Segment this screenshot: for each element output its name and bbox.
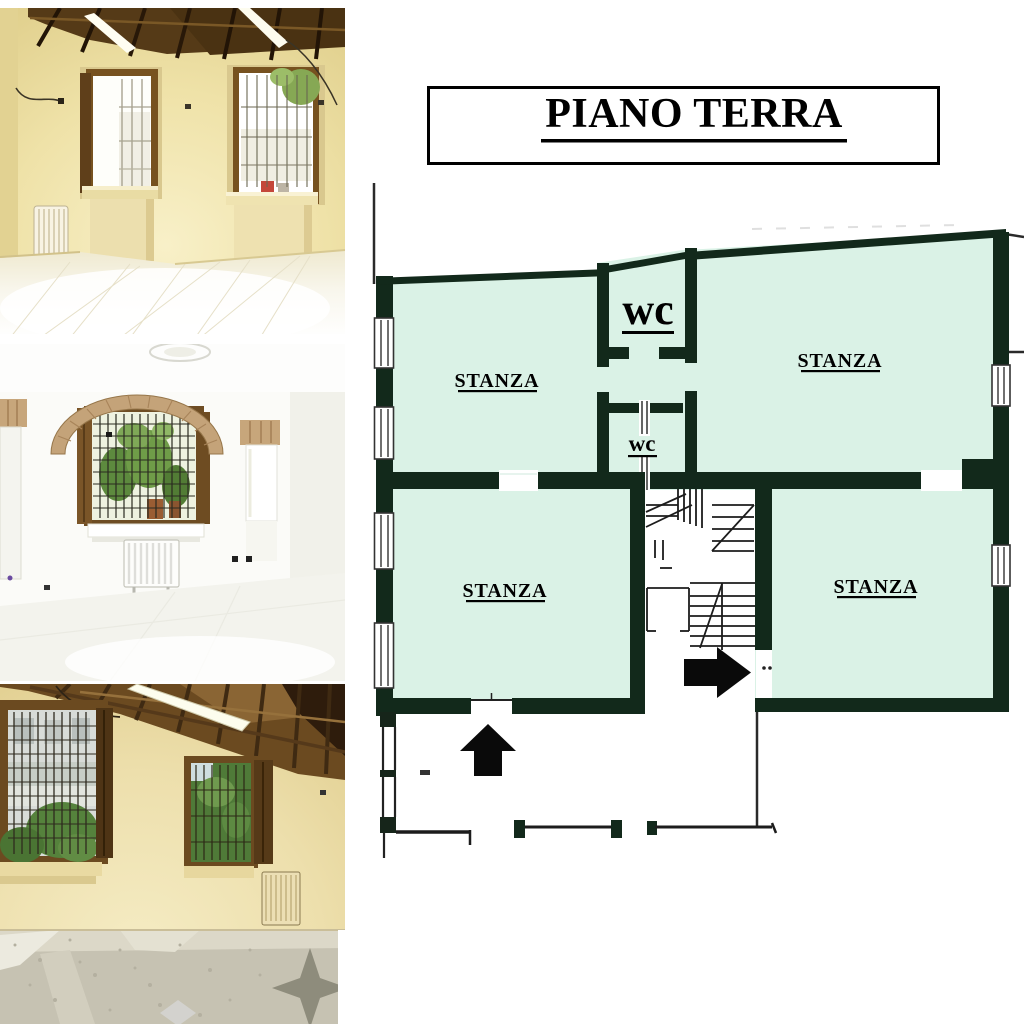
svg-text:PIANO TERRA: PIANO TERRA [545,91,843,137]
svg-text:STANZA: STANZA [462,580,547,602]
svg-text:wc: wc [622,285,673,334]
svg-text:wc: wc [629,431,656,456]
svg-text:STANZA: STANZA [833,576,918,598]
svg-text:STANZA: STANZA [797,350,882,372]
svg-text:STANZA: STANZA [454,370,539,392]
